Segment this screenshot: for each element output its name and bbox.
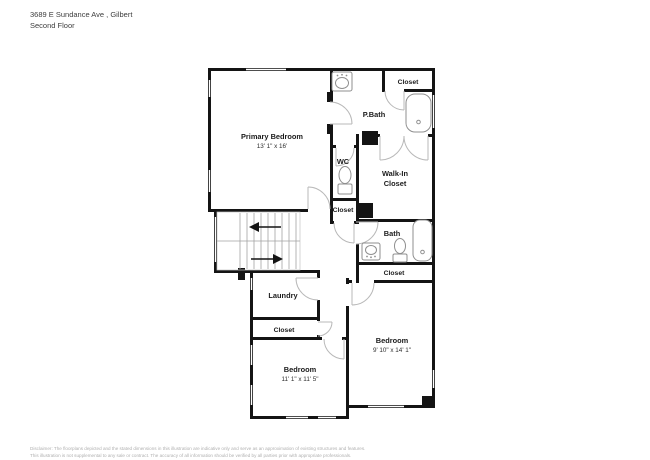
pbath-sink-icon <box>332 72 352 91</box>
room-label-walk-in-closet-2: Closet <box>384 179 407 188</box>
room-label-bedroom-right: Bedroom <box>376 336 409 345</box>
stairs <box>217 212 300 270</box>
bath-sink-icon <box>362 243 380 260</box>
room-label-p-bath: P.Bath <box>363 110 386 119</box>
disclaimer-line-2: This illustration is not supplemental to… <box>30 452 630 459</box>
fixtures <box>332 72 432 262</box>
room-label-walk-in-closet-1: Walk-In <box>382 169 408 178</box>
room-label-laundry: Laundry <box>268 291 298 300</box>
door-walk-in-closet <box>380 136 428 160</box>
door-closet-top-right <box>385 91 404 110</box>
room-label-bedroom-left: Bedroom <box>284 365 317 374</box>
stairs-down-arrow <box>251 254 283 264</box>
floor-plan: Primary Bedroom 13' 1" x 16' P.Bath Clos… <box>0 0 650 460</box>
door-closet-hall <box>334 223 354 243</box>
room-label-primary-bedroom: Primary Bedroom <box>241 132 303 141</box>
bath-toilet-icon <box>393 239 407 263</box>
room-label-bath: Bath <box>384 229 401 238</box>
door-bedroom-left <box>324 339 344 359</box>
pbath-tub-icon <box>406 94 431 132</box>
room-label-closet-linen: Closet <box>384 270 406 277</box>
room-label-closet-bedroom: Closet <box>274 327 296 334</box>
wc-toilet-icon <box>338 167 352 195</box>
door-pbath <box>330 102 352 124</box>
room-dims-primary-bedroom: 13' 1" x 16' <box>257 143 288 150</box>
room-label-closet-top-right: Closet <box>398 79 420 86</box>
door-laundry <box>296 278 318 300</box>
room-dims-bedroom-right: 9' 10" x 14' 1" <box>373 347 411 354</box>
door-primary-bedroom <box>308 187 330 209</box>
room-label-wc: WC <box>337 157 350 166</box>
door-bedroom-right <box>352 283 374 305</box>
bath-tub-icon <box>413 220 432 261</box>
room-dims-bedroom-left: 11' 1" x 11' 5" <box>281 376 318 383</box>
door-closet-bedroom <box>318 322 332 336</box>
door-bath <box>356 222 378 244</box>
disclaimer-line-1: Disclaimer: The floorplans depicted and … <box>30 445 630 452</box>
room-label-closet-hall: Closet <box>333 207 355 214</box>
disclaimer: Disclaimer: The floorplans depicted and … <box>30 445 630 459</box>
